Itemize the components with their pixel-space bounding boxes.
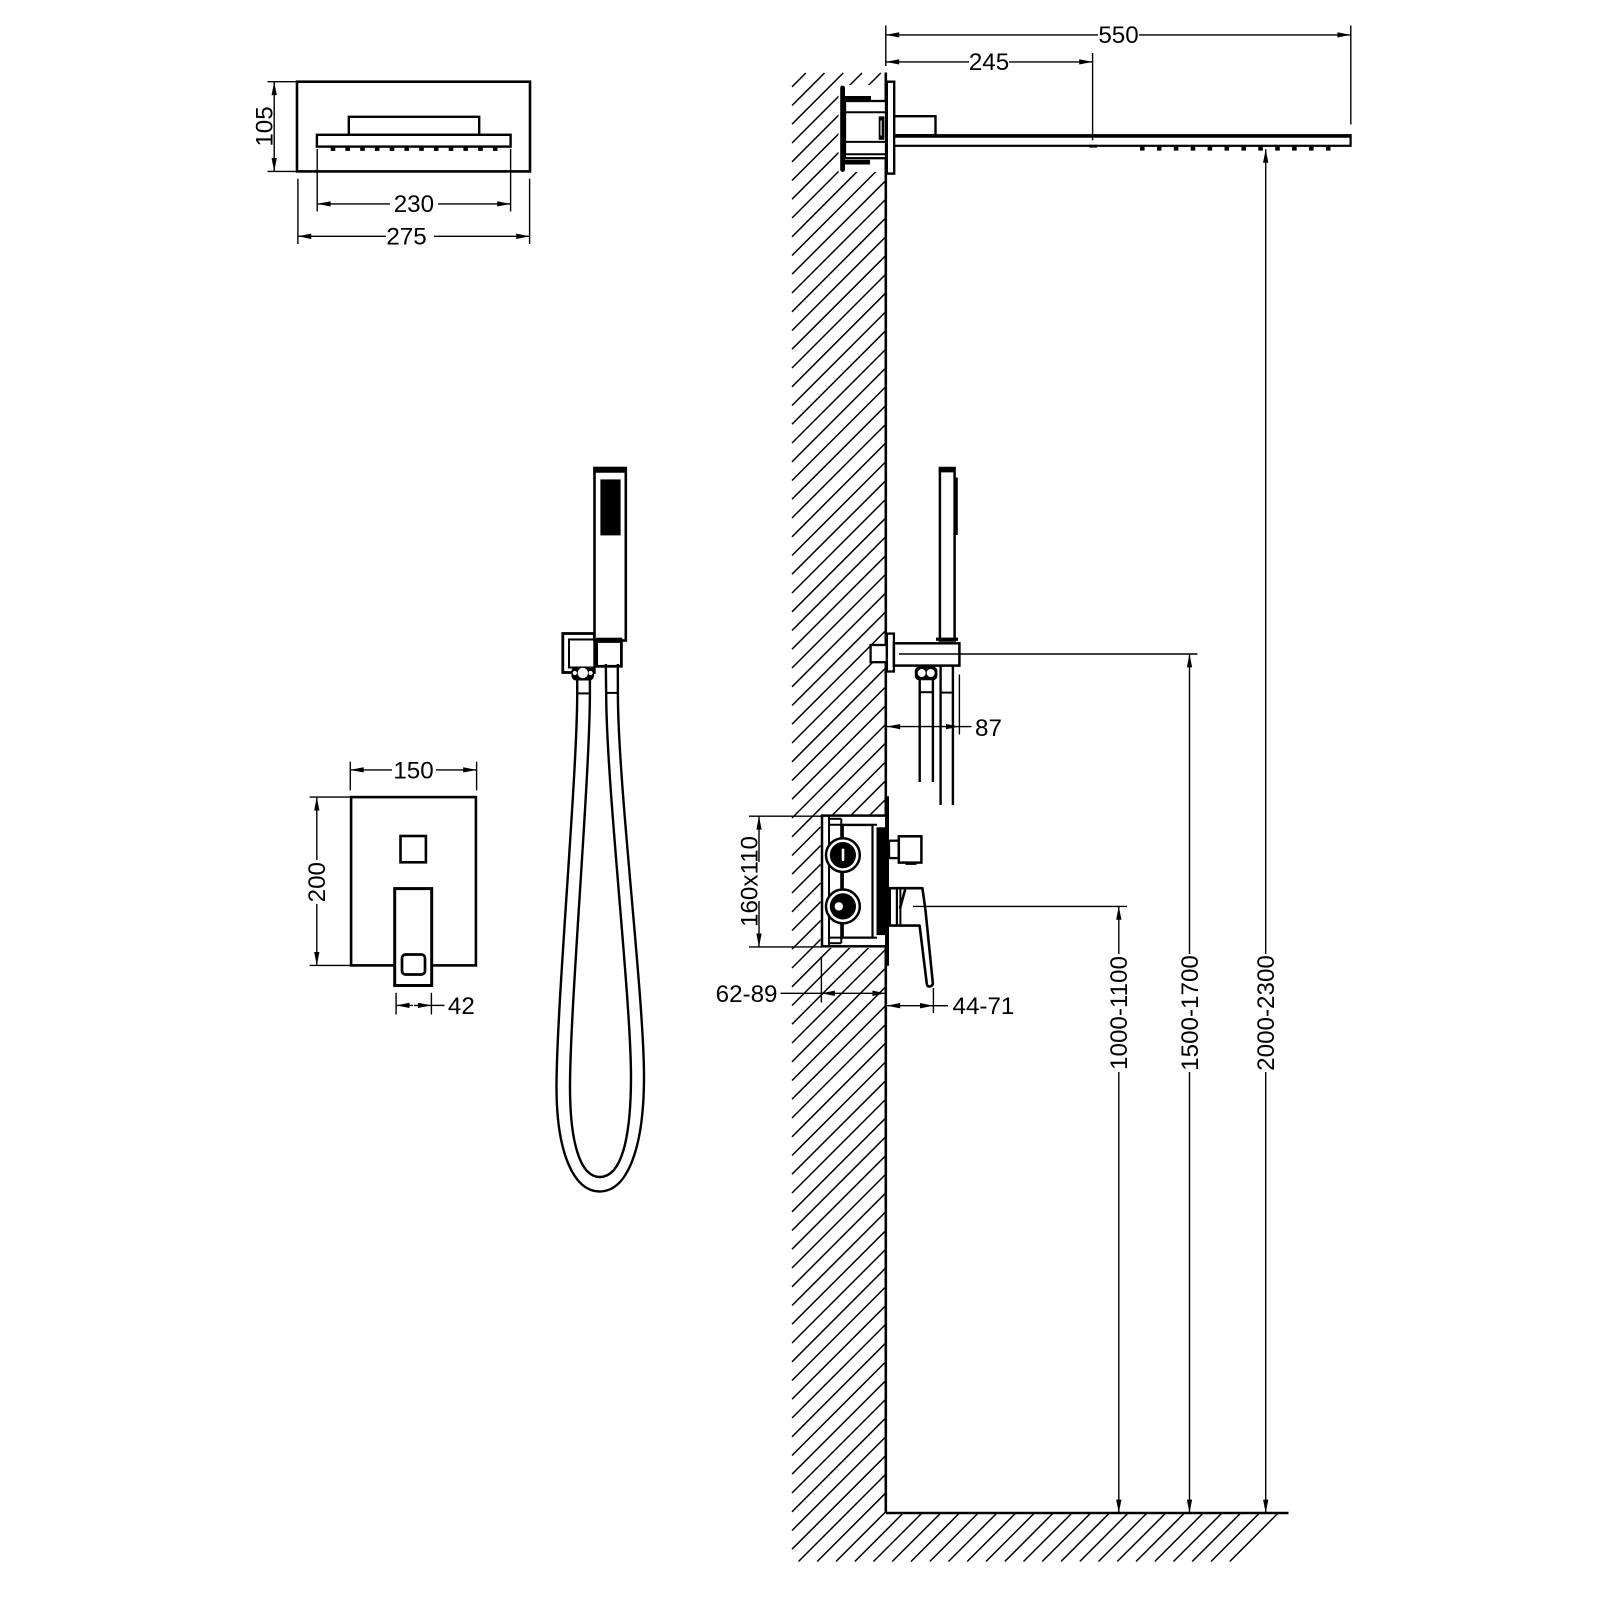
svg-text:2000-2300: 2000-2300 (1253, 955, 1280, 1071)
svg-text:275: 275 (386, 224, 426, 251)
svg-text:105: 105 (252, 106, 279, 146)
svg-text:42: 42 (448, 993, 475, 1020)
svg-text:230: 230 (394, 191, 434, 218)
svg-text:200: 200 (304, 862, 331, 902)
svg-text:87: 87 (975, 715, 1002, 742)
svg-text:550: 550 (1098, 22, 1138, 49)
svg-text:150: 150 (393, 758, 433, 785)
svg-text:1000-1100: 1000-1100 (1106, 956, 1133, 1070)
svg-text:62-89: 62-89 (716, 981, 778, 1008)
svg-text:245: 245 (969, 49, 1009, 76)
svg-text:44-71: 44-71 (953, 993, 1015, 1020)
svg-text:1500-1700: 1500-1700 (1177, 955, 1204, 1071)
svg-text:160x110: 160x110 (737, 836, 764, 927)
